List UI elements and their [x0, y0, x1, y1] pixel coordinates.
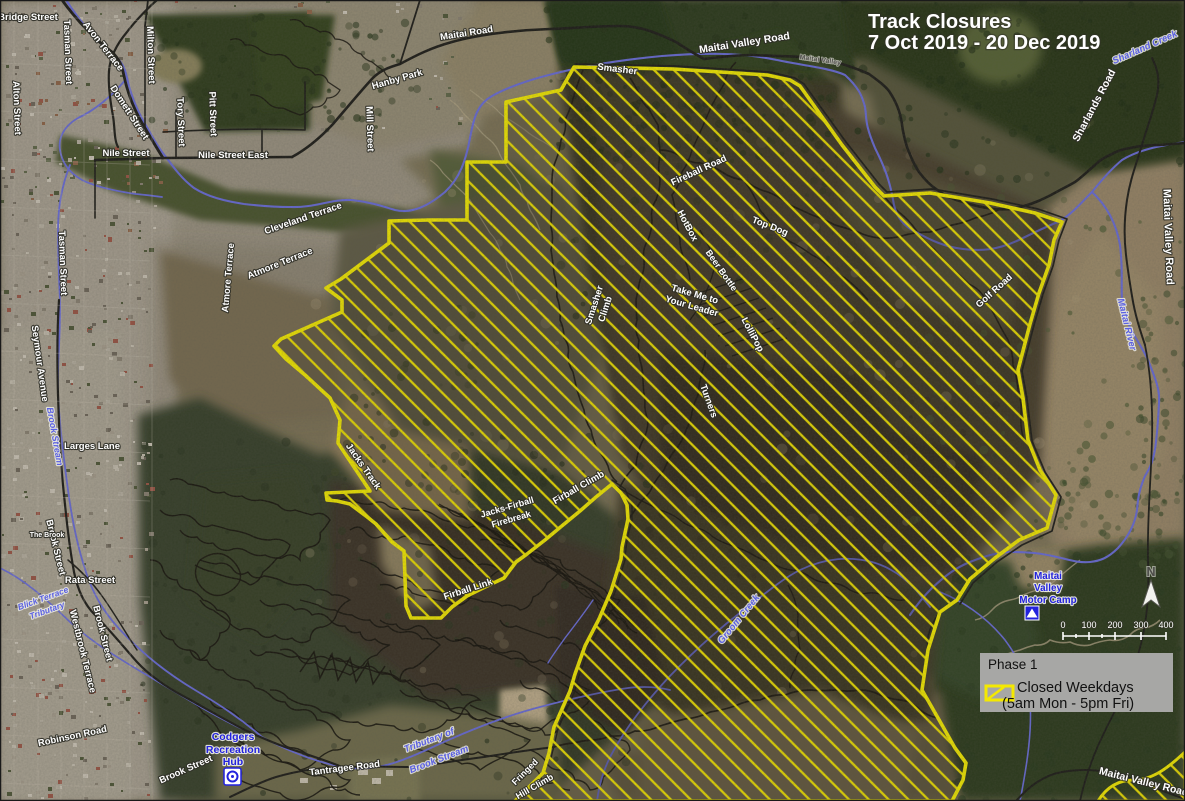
- svg-text:Nile Street East: Nile Street East: [198, 150, 269, 161]
- svg-text:7 Oct 2019 - 20 Dec 2019: 7 Oct 2019 - 20 Dec 2019: [868, 32, 1100, 54]
- svg-text:0: 0: [1060, 620, 1065, 630]
- svg-text:Pitt Street: Pitt Street: [206, 91, 219, 137]
- svg-text:Maitai: Maitai: [1034, 571, 1062, 582]
- svg-text:400: 400: [1158, 620, 1173, 630]
- svg-text:Larges Lane: Larges Lane: [64, 441, 120, 452]
- svg-text:Valley: Valley: [1034, 583, 1062, 594]
- svg-text:Rata Street: Rata Street: [65, 575, 116, 586]
- svg-text:Mill Street: Mill Street: [363, 106, 376, 153]
- svg-text:Tasman Street: Tasman Street: [61, 19, 74, 85]
- svg-text:200: 200: [1107, 620, 1122, 630]
- svg-text:Milton Street: Milton Street: [144, 26, 157, 85]
- svg-text:Codgers: Codgers: [212, 731, 255, 743]
- svg-text:The Brook: The Brook: [30, 532, 65, 539]
- svg-text:100: 100: [1081, 620, 1096, 630]
- svg-text:Alton Street: Alton Street: [10, 81, 23, 136]
- svg-text:N: N: [1146, 565, 1155, 579]
- svg-text:Track Closures: Track Closures: [868, 11, 1011, 33]
- svg-text:300: 300: [1133, 620, 1148, 630]
- svg-text:Closed Weekdays: Closed Weekdays: [1017, 680, 1134, 696]
- svg-text:Motor Camp: Motor Camp: [1019, 595, 1076, 606]
- svg-text:Tasman Street: Tasman Street: [56, 230, 69, 296]
- svg-text:Bridge Street: Bridge Street: [0, 12, 59, 23]
- svg-text:Hub: Hub: [223, 756, 243, 768]
- svg-text:Recreation: Recreation: [206, 744, 260, 756]
- svg-text:Tory Street: Tory Street: [174, 97, 187, 148]
- svg-text:(5am Mon - 5pm Fri): (5am Mon - 5pm Fri): [1002, 696, 1134, 712]
- svg-text:Nile Street: Nile Street: [103, 148, 151, 159]
- svg-text:Phase 1: Phase 1: [988, 657, 1038, 672]
